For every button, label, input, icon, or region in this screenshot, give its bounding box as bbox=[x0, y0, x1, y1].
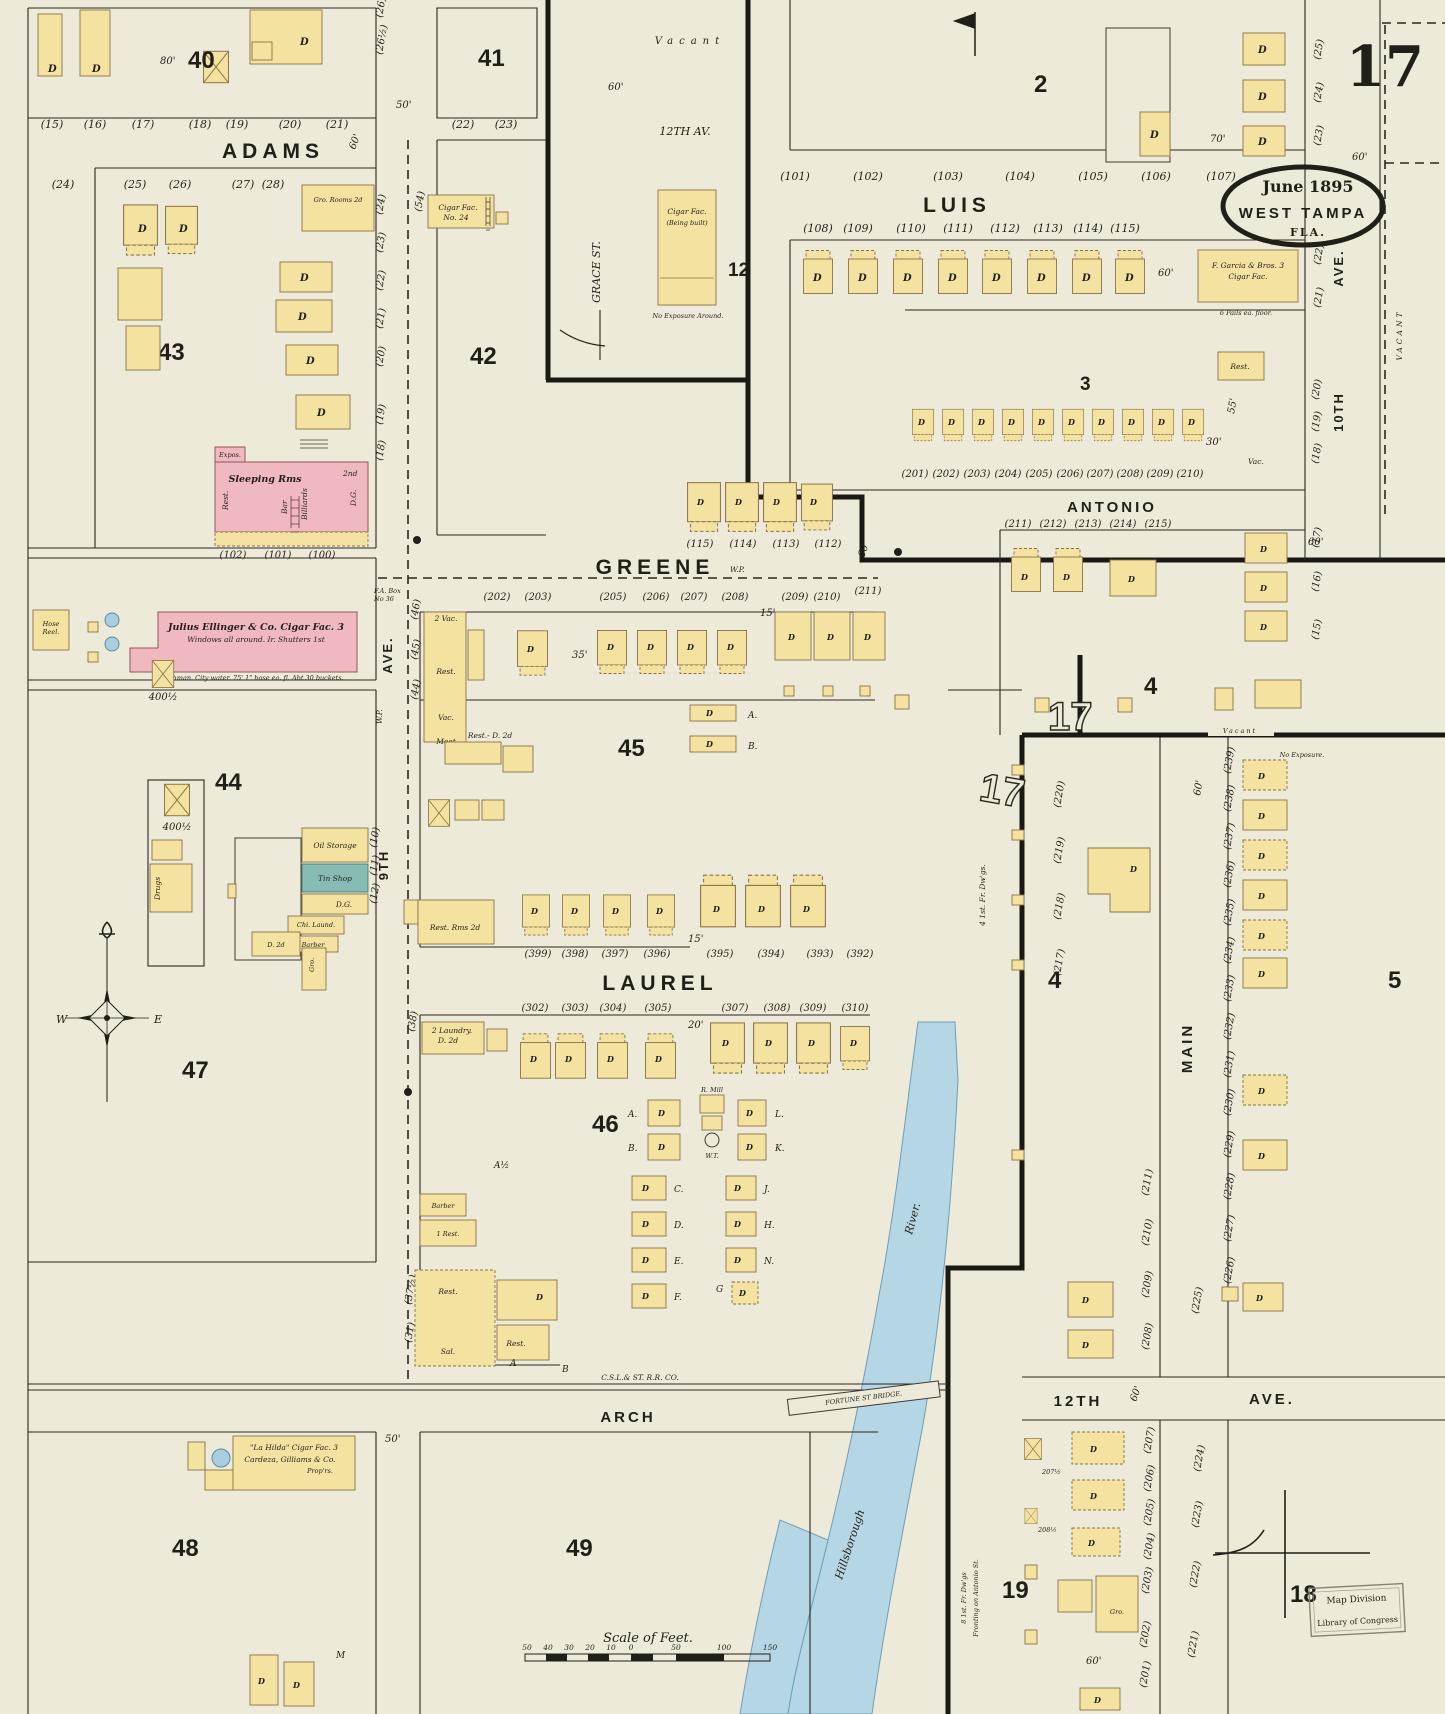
svg-text:D: D bbox=[641, 1291, 649, 1301]
svg-text:(16): (16) bbox=[84, 118, 107, 131]
svg-text:D: D bbox=[641, 1255, 649, 1265]
svg-text:D: D bbox=[1257, 771, 1265, 781]
svg-text:(101): (101) bbox=[265, 550, 292, 561]
svg-text:D. 2d: D. 2d bbox=[266, 941, 284, 949]
svg-text:D: D bbox=[733, 1255, 741, 1265]
svg-text:(24): (24) bbox=[52, 178, 75, 191]
svg-text:(111): (111) bbox=[943, 222, 973, 235]
svg-text:0: 0 bbox=[629, 1643, 634, 1652]
svg-text:(18): (18) bbox=[189, 118, 212, 131]
svg-text:2 Vac.: 2 Vac. bbox=[434, 614, 458, 623]
svg-text:D: D bbox=[947, 273, 957, 284]
garcia-label-1: F. Garcia & Bros. 3 bbox=[1211, 261, 1285, 270]
svg-text:D: D bbox=[812, 273, 822, 284]
svg-text:D: D bbox=[764, 1038, 772, 1048]
svg-text:208½: 208½ bbox=[1037, 1526, 1057, 1534]
svg-text:(26): (26) bbox=[169, 178, 192, 191]
svg-text:150: 150 bbox=[763, 1643, 778, 1652]
svg-text:(310): (310) bbox=[842, 1003, 869, 1014]
svg-text:W: W bbox=[56, 1013, 69, 1026]
svg-text:W.P.: W.P. bbox=[375, 709, 384, 724]
svg-text:2 Laundry.: 2 Laundry. bbox=[431, 1026, 472, 1035]
svg-text:D: D bbox=[1062, 572, 1070, 582]
svg-text:D: D bbox=[721, 1038, 729, 1048]
svg-text:15': 15' bbox=[760, 608, 775, 619]
svg-text:D: D bbox=[530, 906, 538, 916]
svg-text:D: D bbox=[1157, 417, 1165, 427]
svg-text:400½: 400½ bbox=[148, 692, 178, 703]
svg-text:D: D bbox=[1127, 574, 1135, 584]
block-40-number: 40 bbox=[188, 47, 215, 74]
svg-text:(113): (113) bbox=[1033, 222, 1063, 235]
svg-text:D: D bbox=[257, 1676, 265, 1686]
svg-text:D: D bbox=[606, 642, 614, 652]
oil-storage-label: Oil Storage bbox=[313, 841, 357, 850]
svg-text:D: D bbox=[529, 1054, 537, 1064]
svg-text:60': 60' bbox=[1352, 152, 1367, 163]
svg-text:D: D bbox=[641, 1219, 649, 1229]
svg-text:N.: N. bbox=[763, 1257, 774, 1267]
svg-text:D: D bbox=[745, 1142, 753, 1152]
svg-text:(108): (108) bbox=[803, 222, 833, 235]
antonio-label: ANTONIO bbox=[1067, 499, 1157, 516]
luis-label: LUIS bbox=[923, 194, 991, 217]
svg-text:D: D bbox=[1089, 1491, 1097, 1501]
svg-text:(208): (208) bbox=[722, 592, 749, 603]
svg-text:40: 40 bbox=[542, 1643, 553, 1652]
svg-text:(302): (302) bbox=[522, 1003, 549, 1014]
svg-text:50': 50' bbox=[396, 100, 411, 111]
svg-text:D: D bbox=[726, 642, 734, 652]
svg-text:Rest.- D. 2d: Rest.- D. 2d bbox=[467, 731, 513, 740]
svg-text:D: D bbox=[526, 644, 534, 654]
svg-text:A.: A. bbox=[747, 711, 757, 721]
block-42-number: 42 bbox=[470, 343, 497, 370]
svg-text:B.: B. bbox=[747, 742, 758, 752]
frame-dwellings-label: 4 1st. Fr. Dw'gs. bbox=[978, 864, 987, 927]
svg-text:VACANT: VACANT bbox=[1395, 309, 1404, 360]
svg-text:G: G bbox=[716, 1285, 723, 1295]
svg-text:Sal.: Sal. bbox=[441, 1347, 455, 1356]
svg-text:C.: C. bbox=[674, 1185, 684, 1195]
svg-text:(214): (214) bbox=[1110, 519, 1137, 530]
svg-text:35': 35' bbox=[572, 650, 587, 661]
svg-text:D: D bbox=[849, 1038, 857, 1048]
svg-text:(102): (102) bbox=[220, 550, 247, 561]
svg-text:8 1st. Fr. Dw'gs: 8 1st. Fr. Dw'gs bbox=[960, 1572, 968, 1624]
sleeping-rms-label: Sleeping Rms bbox=[229, 474, 303, 485]
ninth-ave-label: AVE. bbox=[380, 636, 395, 673]
svg-text:30: 30 bbox=[564, 1643, 574, 1652]
svg-text:D: D bbox=[570, 906, 578, 916]
svg-text:(209): (209) bbox=[782, 592, 809, 603]
svg-text:(202): (202) bbox=[933, 469, 960, 480]
svg-text:(215): (215) bbox=[1145, 519, 1172, 530]
svg-text:(103): (103) bbox=[933, 170, 963, 183]
svg-text:D.G.: D.G. bbox=[349, 490, 358, 507]
svg-text:Bar: Bar bbox=[280, 500, 289, 515]
svg-text:A½: A½ bbox=[493, 1160, 509, 1171]
svg-text:W.T.: W.T. bbox=[705, 1152, 718, 1160]
svg-text:(101): (101) bbox=[780, 170, 810, 183]
block-3-number: 3 bbox=[1080, 374, 1091, 395]
twelfth-ave-label: AVE. bbox=[1249, 1391, 1295, 1408]
svg-text:Billiards: Billiards bbox=[300, 488, 309, 521]
svg-text:A.: A. bbox=[627, 1110, 637, 1120]
svg-text:(205): (205) bbox=[600, 592, 627, 603]
svg-text:D: D bbox=[641, 1183, 649, 1193]
svg-text:D: D bbox=[1259, 544, 1267, 554]
svg-text:R. Mill: R. Mill bbox=[700, 1086, 723, 1094]
svg-text:D: D bbox=[655, 906, 663, 916]
svg-text:Vacant: Vacant bbox=[1223, 727, 1257, 735]
svg-text:(207): (207) bbox=[1087, 469, 1114, 480]
svg-text:Cigar Fac.: Cigar Fac. bbox=[667, 207, 706, 216]
svg-text:D: D bbox=[1257, 931, 1265, 941]
svg-text:D: D bbox=[606, 1054, 614, 1064]
svg-text:B.: B. bbox=[627, 1144, 638, 1154]
svg-text:10: 10 bbox=[606, 1643, 616, 1652]
svg-text:D: D bbox=[1257, 811, 1265, 821]
svg-text:(206): (206) bbox=[643, 592, 670, 603]
svg-text:D: D bbox=[1089, 1444, 1097, 1454]
svg-text:D: D bbox=[1081, 1295, 1089, 1305]
twelfth-av-label: 12TH AV. bbox=[659, 125, 710, 138]
svg-text:D: D bbox=[686, 642, 694, 652]
svg-text:Chi. Laund.: Chi. Laund. bbox=[297, 921, 335, 929]
svg-text:(115): (115) bbox=[687, 539, 714, 550]
map-city: WEST TAMPA bbox=[1239, 205, 1368, 222]
svg-text:Rest.: Rest. bbox=[435, 667, 455, 676]
svg-text:F.A. Box: F.A. Box bbox=[373, 587, 401, 595]
svg-text:D: D bbox=[299, 273, 309, 284]
svg-text:L.: L. bbox=[774, 1110, 784, 1120]
svg-text:(212): (212) bbox=[1040, 519, 1067, 530]
svg-text:(203): (203) bbox=[525, 592, 552, 603]
svg-text:D: D bbox=[1255, 1293, 1263, 1303]
svg-text:(208): (208) bbox=[1117, 469, 1144, 480]
svg-text:(17): (17) bbox=[132, 118, 155, 131]
svg-text:60': 60' bbox=[1308, 537, 1323, 548]
svg-text:B: B bbox=[561, 1365, 569, 1375]
svg-text:D: D bbox=[947, 417, 955, 427]
block-4-upper-number: 4 bbox=[1144, 673, 1158, 700]
svg-text:D: D bbox=[807, 1038, 815, 1048]
svg-text:D: D bbox=[292, 1680, 300, 1690]
svg-text:E.: E. bbox=[673, 1257, 684, 1267]
svg-text:D: D bbox=[1257, 137, 1267, 148]
svg-text:Gro.: Gro. bbox=[308, 958, 316, 972]
svg-text:D: D bbox=[1257, 1151, 1265, 1161]
svg-text:D: D bbox=[696, 497, 704, 507]
block-49-number: 49 bbox=[566, 1535, 593, 1562]
svg-text:D: D bbox=[1257, 92, 1267, 103]
svg-text:Rest.: Rest. bbox=[505, 1339, 525, 1348]
svg-text:D: D bbox=[809, 497, 817, 507]
svg-text:D: D bbox=[733, 1219, 741, 1229]
svg-text:(398): (398) bbox=[562, 949, 589, 960]
svg-text:D: D bbox=[802, 904, 810, 914]
block-19-number: 19 bbox=[1002, 1577, 1029, 1604]
lahilda-label-1: "La Hilda" Cigar Fac. 3 bbox=[250, 1443, 338, 1452]
svg-text:D: D bbox=[564, 1054, 572, 1064]
svg-text:(392): (392) bbox=[847, 949, 874, 960]
svg-text:D: D bbox=[1036, 273, 1046, 284]
block-2-number: 2 bbox=[1034, 71, 1047, 98]
map-canvas: DD D 40 80' (15) (16) (17) (18) (19) (20… bbox=[0, 0, 1445, 1714]
svg-text:D: D bbox=[991, 273, 1001, 284]
svg-text:D: D bbox=[757, 904, 765, 914]
svg-text:Drugs: Drugs bbox=[153, 877, 162, 901]
svg-text:207½: 207½ bbox=[1041, 1468, 1061, 1476]
svg-text:(107): (107) bbox=[1206, 170, 1236, 183]
svg-text:(205): (205) bbox=[1026, 469, 1053, 480]
tin-shop-label: Tin Shop bbox=[318, 874, 352, 883]
svg-text:D: D bbox=[712, 904, 720, 914]
svg-text:70': 70' bbox=[1210, 134, 1225, 145]
svg-text:(209): (209) bbox=[1147, 469, 1174, 480]
svg-text:(19): (19) bbox=[226, 118, 249, 131]
svg-text:(399): (399) bbox=[525, 949, 552, 960]
svg-text:30': 30' bbox=[1206, 437, 1221, 448]
svg-text:(304): (304) bbox=[600, 1003, 627, 1014]
svg-text:D: D bbox=[137, 224, 147, 235]
svg-text:Rest.: Rest. bbox=[1229, 362, 1249, 371]
svg-text:(204): (204) bbox=[995, 469, 1022, 480]
svg-text:D: D bbox=[91, 64, 101, 75]
svg-text:(25): (25) bbox=[124, 178, 147, 191]
svg-text:No Exposure.: No Exposure. bbox=[1279, 751, 1325, 759]
svg-text:Vac.: Vac. bbox=[438, 713, 454, 722]
sheet-number: 17 bbox=[1346, 34, 1424, 100]
svg-text:D: D bbox=[1081, 1340, 1089, 1350]
svg-text:(113): (113) bbox=[773, 539, 800, 550]
block-45-number: 45 bbox=[618, 735, 645, 762]
svg-text:D: D bbox=[1007, 417, 1015, 427]
water-pipe-dot bbox=[413, 536, 421, 544]
svg-text:D: D bbox=[1093, 1695, 1101, 1705]
title-oval: June 1895 WEST TAMPA FLA. bbox=[1223, 167, 1383, 245]
svg-text:E: E bbox=[153, 1013, 162, 1026]
svg-text:D: D bbox=[917, 417, 925, 427]
svg-text:20: 20 bbox=[584, 1643, 595, 1652]
svg-text:D: D bbox=[1149, 130, 1159, 141]
svg-text:(27): (27) bbox=[232, 178, 255, 191]
block-12-number: 12 bbox=[728, 260, 749, 281]
svg-text:D: D bbox=[1257, 45, 1267, 56]
svg-text:(112): (112) bbox=[990, 222, 1020, 235]
svg-text:M: M bbox=[335, 1651, 346, 1661]
tenth-label: 10TH bbox=[1331, 392, 1346, 432]
svg-text:D: D bbox=[1259, 622, 1267, 632]
svg-text:60': 60' bbox=[1086, 1656, 1101, 1667]
svg-text:(396): (396) bbox=[644, 949, 671, 960]
svg-text:(211): (211) bbox=[855, 586, 882, 597]
sanborn-map-sheet: DD D 40 80' (15) (16) (17) (18) (19) (20… bbox=[0, 0, 1445, 1714]
svg-text:H.: H. bbox=[763, 1221, 775, 1231]
tenth-ave-label: AVE. bbox=[1331, 249, 1346, 286]
svg-text:(106): (106) bbox=[1141, 170, 1171, 183]
svg-text:(112): (112) bbox=[815, 539, 842, 550]
svg-text:J.: J. bbox=[762, 1185, 770, 1195]
svg-text:(210): (210) bbox=[814, 592, 841, 603]
svg-text:(15): (15) bbox=[41, 118, 64, 131]
svg-text:50: 50 bbox=[671, 1643, 681, 1652]
svg-text:(28): (28) bbox=[262, 178, 285, 191]
svg-text:A: A bbox=[509, 1359, 517, 1369]
svg-text:D: D bbox=[977, 417, 985, 427]
svg-text:(394): (394) bbox=[758, 949, 785, 960]
svg-text:D: D bbox=[305, 356, 315, 367]
svg-text:D: D bbox=[734, 497, 742, 507]
svg-text:K.: K. bbox=[774, 1144, 785, 1154]
svg-text:50': 50' bbox=[385, 1434, 400, 1445]
svg-text:D: D bbox=[733, 1183, 741, 1193]
svg-text:(305): (305) bbox=[645, 1003, 672, 1014]
svg-text:D: D bbox=[745, 1108, 753, 1118]
svg-text:D: D bbox=[1127, 417, 1135, 427]
svg-text:D: D bbox=[1257, 891, 1265, 901]
svg-text:Reel.: Reel. bbox=[42, 628, 60, 636]
twelfth-label: 12TH bbox=[1054, 1393, 1103, 1410]
ellinger-label-3: Watchman. City water. 75' 1" hose ea. fl… bbox=[156, 674, 343, 682]
svg-text:D: D bbox=[863, 632, 871, 642]
svg-text:(206): (206) bbox=[1057, 469, 1084, 480]
svg-text:Fronting on Antonio St.: Fronting on Antonio St. bbox=[972, 1559, 980, 1638]
svg-text:(303): (303) bbox=[562, 1003, 589, 1014]
svg-text:(22): (22) bbox=[452, 118, 475, 131]
svg-text:100: 100 bbox=[717, 1643, 732, 1652]
block-46-number: 46 bbox=[592, 1111, 619, 1138]
svg-text:D: D bbox=[738, 1288, 746, 1298]
svg-text:D: D bbox=[705, 739, 713, 749]
svg-text:(213): (213) bbox=[1075, 519, 1102, 530]
svg-text:20': 20' bbox=[687, 1020, 703, 1031]
svg-text:(114): (114) bbox=[1073, 222, 1103, 235]
svg-text:D: D bbox=[772, 497, 780, 507]
garcia-label-3: 6 Pails ea. floor. bbox=[1220, 309, 1272, 317]
svg-text:Rest.: Rest. bbox=[221, 491, 230, 511]
lahilda-label-3: Prop'rs. bbox=[306, 1467, 333, 1475]
svg-text:(20): (20) bbox=[279, 118, 302, 131]
svg-text:Barber: Barber bbox=[431, 1202, 456, 1210]
svg-text:D: D bbox=[1257, 1086, 1265, 1096]
svg-text:60': 60' bbox=[608, 82, 623, 93]
garcia-label-2: Cigar Fac. bbox=[1228, 272, 1267, 281]
svg-text:D: D bbox=[657, 1108, 665, 1118]
svg-text:No Exposure Around.: No Exposure Around. bbox=[651, 312, 723, 320]
svg-text:(102): (102) bbox=[853, 170, 883, 183]
svg-text:(100): (100) bbox=[309, 550, 336, 561]
svg-text:(Being built): (Being built) bbox=[666, 219, 708, 227]
svg-text:Hose: Hose bbox=[42, 620, 60, 628]
map-date: June 1895 bbox=[1260, 177, 1353, 196]
block-18-number: 18 bbox=[1290, 1581, 1317, 1608]
greene-label: GREENE bbox=[596, 556, 715, 579]
block-48-number: 48 bbox=[172, 1535, 199, 1562]
main-label: MAIN bbox=[1179, 1023, 1196, 1073]
svg-text:D: D bbox=[297, 312, 307, 323]
block-44-number: 44 bbox=[215, 769, 242, 796]
svg-text:Gro.: Gro. bbox=[1110, 1608, 1124, 1616]
lahilda-label-2: Cardeza, Gilliams & Co. bbox=[244, 1455, 335, 1464]
svg-text:D: D bbox=[535, 1292, 543, 1302]
vacant-label: Vacant bbox=[655, 36, 725, 47]
svg-text:D: D bbox=[1257, 851, 1265, 861]
block-47-number: 47 bbox=[182, 1057, 209, 1084]
svg-text:D: D bbox=[826, 632, 834, 642]
svg-text:D: D bbox=[1257, 969, 1265, 979]
laurel-label: LAUREL bbox=[602, 972, 717, 995]
svg-text:Expos.: Expos. bbox=[218, 451, 241, 459]
svg-text:1 Rest.: 1 Rest. bbox=[437, 1230, 460, 1238]
svg-text:D: D bbox=[611, 906, 619, 916]
svg-text:50: 50 bbox=[522, 1643, 532, 1652]
svg-text:No 36: No 36 bbox=[373, 595, 394, 603]
svg-text:(308): (308) bbox=[764, 1003, 791, 1014]
ellinger-label-1: Julius Ellinger & Co. Cigar Fac. 3 bbox=[166, 622, 344, 633]
svg-text:(201): (201) bbox=[902, 469, 929, 480]
svg-text:(105): (105) bbox=[1078, 170, 1108, 183]
svg-text:(202): (202) bbox=[484, 592, 511, 603]
svg-text:D: D bbox=[1187, 417, 1195, 427]
svg-text:Rest. Rms 2d: Rest. Rms 2d bbox=[429, 923, 480, 932]
svg-text:No. 24: No. 24 bbox=[442, 213, 468, 222]
svg-text:D: D bbox=[1067, 417, 1075, 427]
svg-text:(393): (393) bbox=[807, 949, 834, 960]
svg-text:15': 15' bbox=[688, 934, 703, 945]
adams-label: ADAMS bbox=[222, 140, 324, 163]
svg-text:D: D bbox=[316, 408, 326, 419]
svg-text:D: D bbox=[857, 273, 867, 284]
svg-text:(395): (395) bbox=[707, 949, 734, 960]
svg-text:D: D bbox=[1087, 1538, 1095, 1548]
svg-text:D: D bbox=[654, 1054, 662, 1064]
railroad-label: C.S.L.& ST. R.R. CO. bbox=[601, 1373, 679, 1382]
svg-text:D: D bbox=[787, 632, 795, 642]
svg-text:(210): (210) bbox=[1177, 469, 1204, 480]
svg-text:80': 80' bbox=[160, 56, 175, 67]
svg-text:D: D bbox=[1081, 273, 1091, 284]
svg-text:D.G.: D.G. bbox=[335, 900, 352, 909]
svg-text:F.: F. bbox=[673, 1293, 682, 1303]
svg-text:(109): (109) bbox=[843, 222, 873, 235]
svg-text:400½: 400½ bbox=[162, 822, 192, 833]
svg-text:(114): (114) bbox=[730, 539, 757, 550]
svg-text:W.P.: W.P. bbox=[730, 565, 745, 574]
svg-text:D: D bbox=[1129, 864, 1137, 874]
svg-text:2nd: 2nd bbox=[342, 469, 358, 478]
svg-text:(104): (104) bbox=[1005, 170, 1035, 183]
svg-text:Rest.: Rest. bbox=[437, 1287, 457, 1296]
svg-text:(309): (309) bbox=[800, 1003, 827, 1014]
match-number-17a: 17 bbox=[1048, 695, 1093, 739]
block-43-number: 43 bbox=[158, 339, 185, 366]
svg-text:D: D bbox=[646, 642, 654, 652]
gro-rooms-label: Gro. Rooms 2d bbox=[314, 196, 363, 204]
svg-text:D: D bbox=[1097, 417, 1105, 427]
svg-text:(207): (207) bbox=[681, 592, 708, 603]
block-41-number: 41 bbox=[478, 45, 505, 72]
svg-text:D: D bbox=[47, 64, 57, 75]
svg-text:60': 60' bbox=[1158, 268, 1173, 279]
svg-text:D: D bbox=[178, 224, 188, 235]
svg-text:(307): (307) bbox=[722, 1003, 749, 1014]
svg-text:(23): (23) bbox=[495, 118, 518, 131]
svg-text:D: D bbox=[1020, 572, 1028, 582]
svg-text:(115): (115) bbox=[1110, 222, 1140, 235]
svg-text:D: D bbox=[1124, 273, 1134, 284]
